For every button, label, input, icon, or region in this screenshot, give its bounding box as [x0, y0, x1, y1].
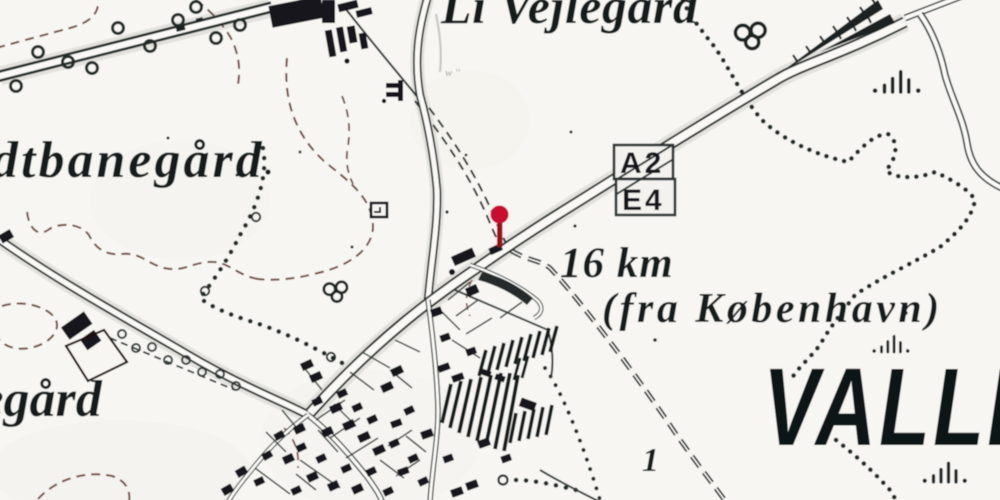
- svg-text:E4: E4: [622, 184, 665, 217]
- svg-text:dtbanegård: dtbanegård: [0, 132, 265, 189]
- svg-text:(fra København): (fra København): [602, 286, 943, 332]
- svg-text:ægård: ægård: [0, 371, 103, 428]
- svg-text:w '': w '': [445, 67, 460, 79]
- svg-text:1: 1: [642, 442, 659, 479]
- svg-text:Li Vejlegård: Li Vejlegård: [440, 0, 699, 34]
- svg-text:A2: A2: [620, 147, 664, 180]
- svg-text:16 km: 16 km: [560, 240, 674, 287]
- svg-text:VALLE: VALLE: [763, 346, 1000, 469]
